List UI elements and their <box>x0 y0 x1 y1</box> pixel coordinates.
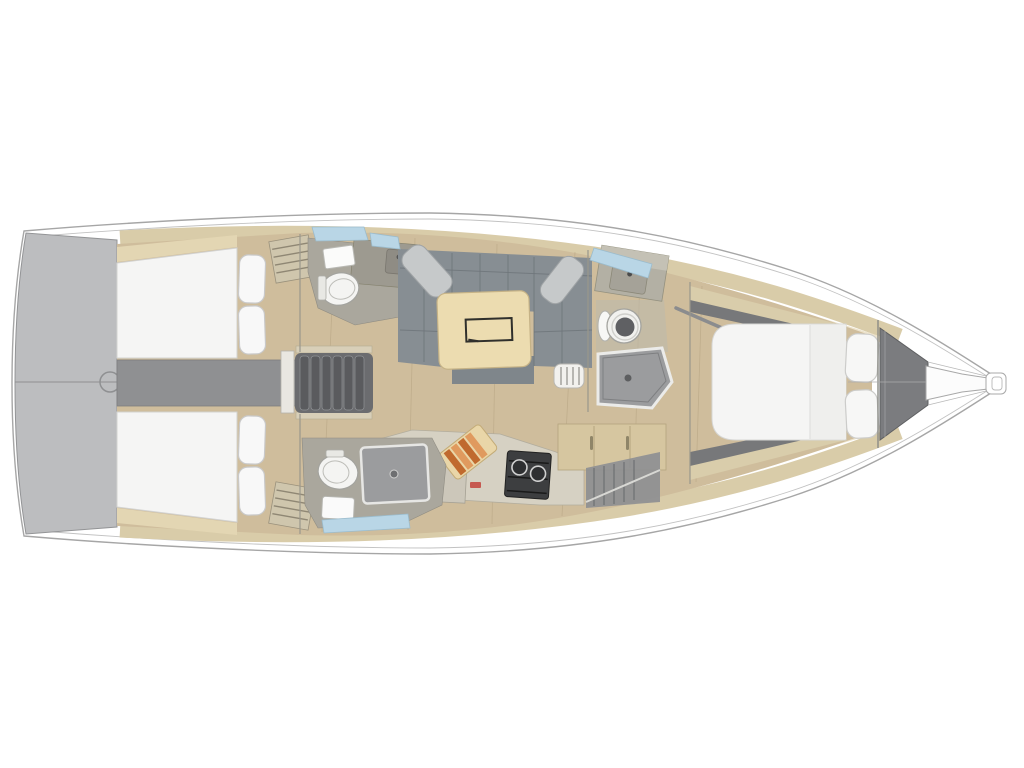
window-port-aft <box>312 227 368 241</box>
bowsprit-tip <box>986 373 1006 394</box>
toilet-tank <box>318 276 326 300</box>
yacht-floor-plan <box>0 0 1024 768</box>
brand-mark <box>470 482 481 488</box>
door-handle <box>626 436 629 450</box>
toilet <box>598 309 641 343</box>
steps-frame <box>281 351 294 413</box>
pillow <box>238 467 266 516</box>
shower-drain <box>625 375 632 382</box>
pillow <box>845 389 879 439</box>
burner <box>530 466 546 482</box>
tray <box>323 245 355 269</box>
pillow <box>238 416 266 465</box>
burner <box>511 459 527 475</box>
pillow <box>238 255 266 304</box>
double-bed <box>117 248 237 358</box>
transom-deck <box>15 233 117 534</box>
mattress-head-section <box>810 325 846 439</box>
pillow <box>238 306 266 355</box>
double-bed <box>117 412 237 522</box>
steps-rail-top <box>296 346 372 353</box>
swim-platform <box>15 233 120 534</box>
steps-rail-bottom <box>296 412 372 419</box>
toilet-tank <box>326 450 344 457</box>
nav-stool <box>554 364 584 388</box>
pillow <box>845 333 879 383</box>
shower-drain <box>390 470 398 478</box>
floor-plan-canvas <box>0 0 1024 768</box>
sink <box>321 496 354 520</box>
engine-corridor <box>117 360 297 406</box>
table-recess <box>466 318 513 342</box>
door-handle <box>590 436 593 450</box>
stove <box>504 451 551 500</box>
saloon-table <box>437 290 532 369</box>
